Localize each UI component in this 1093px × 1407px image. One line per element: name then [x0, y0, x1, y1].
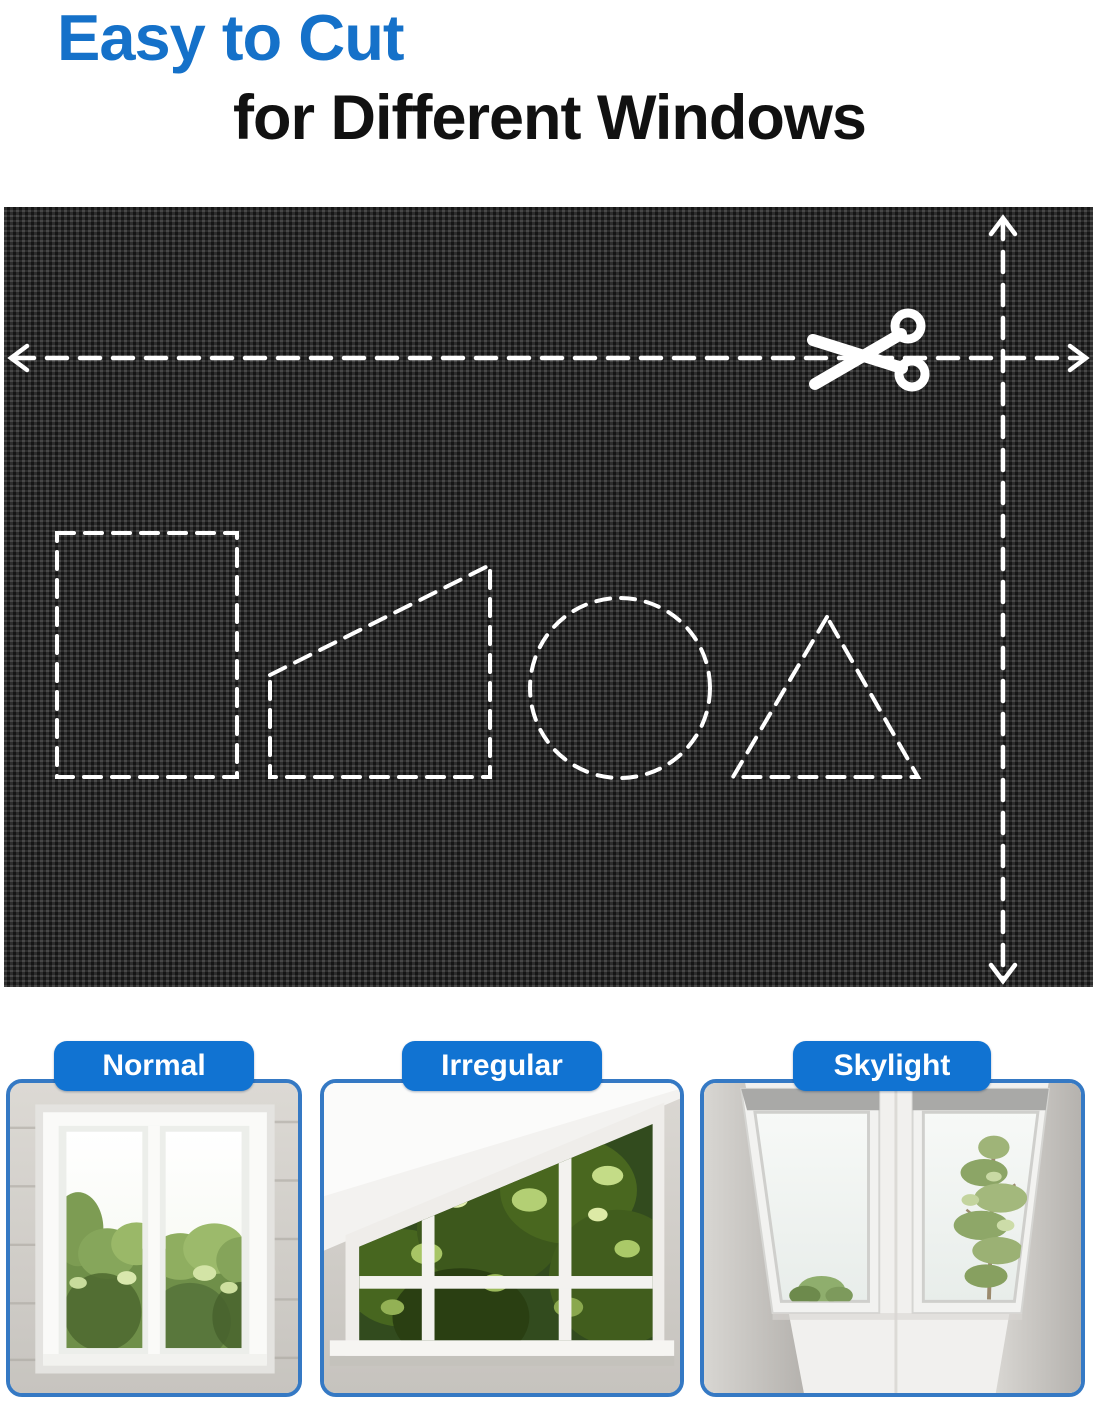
product-infographic: Easy to Cut for Different Windows — [0, 0, 1093, 1407]
page-title-line2: for Different Windows — [233, 82, 866, 154]
page-title-line1: Easy to Cut — [57, 0, 404, 75]
skylight-shadow — [773, 1313, 1023, 1320]
window-card-irregular — [320, 1079, 684, 1397]
trapezoid-cut-guide — [270, 565, 490, 777]
label-badge-skylight: Skylight — [793, 1041, 991, 1091]
label-badge-normal: Normal — [54, 1041, 254, 1091]
triangle-cut-guide — [733, 617, 918, 777]
fabric-swatch — [4, 207, 1093, 987]
skylight-window-photo — [704, 1083, 1081, 1393]
window-sill — [43, 1354, 267, 1366]
center-mullion — [148, 1126, 160, 1354]
circle-cut-guide — [530, 598, 710, 778]
rectangle-cut-guide — [57, 533, 237, 777]
window-card-normal — [6, 1079, 302, 1397]
irregular-window-photo — [324, 1083, 680, 1393]
sill-shadow — [330, 1356, 674, 1366]
normal-window-photo — [10, 1083, 298, 1393]
window-sill — [330, 1340, 674, 1356]
scissors-icon — [813, 313, 925, 387]
label-badge-irregular: Irregular — [402, 1041, 602, 1091]
cut-guides-overlay — [4, 207, 1093, 987]
arrow-down-icon — [991, 965, 1015, 981]
window-card-skylight — [700, 1079, 1085, 1397]
